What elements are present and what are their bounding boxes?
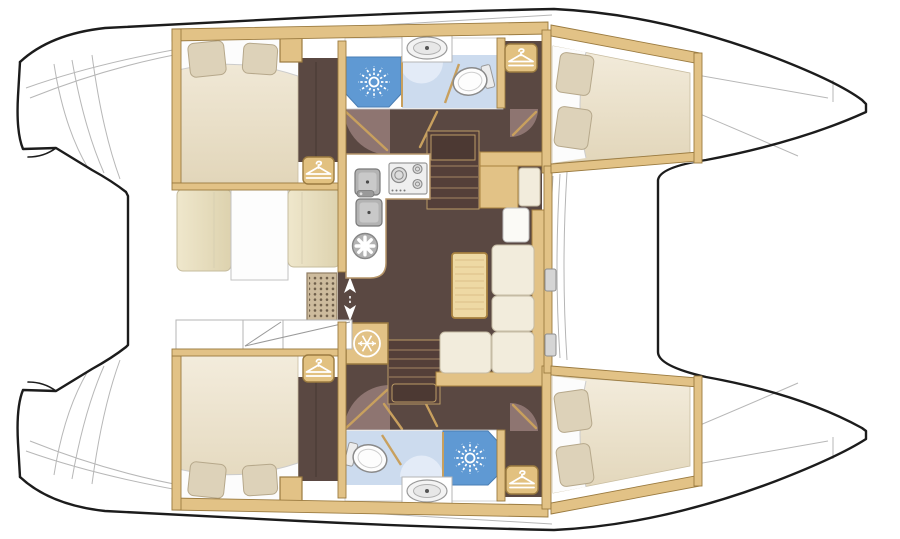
aft-cabin-bottom [178, 356, 302, 505]
fan-icon [353, 234, 378, 259]
sofa-cushion [492, 245, 534, 295]
aft-cabin-bottom-floor [296, 377, 340, 481]
bathroom-top [345, 34, 503, 109]
floor-grating [307, 273, 337, 322]
wall-mid-upper [338, 41, 346, 272]
aft-cabin-top [178, 34, 302, 183]
aft-cabin-top-floor [296, 58, 340, 162]
washbasin-icon [402, 477, 452, 505]
wall-left-lower [172, 356, 181, 510]
sink-icon [356, 199, 382, 226]
cockpit-bench [177, 189, 231, 271]
saloon-table [452, 253, 487, 318]
wall-right-lower [542, 366, 551, 509]
bathroom-bottom [343, 430, 503, 505]
stove-icon [389, 163, 427, 194]
wall-right-upper [542, 30, 551, 173]
pillow [242, 43, 278, 75]
hatch [545, 269, 556, 291]
pillow [553, 389, 592, 433]
sofa-cushion [492, 296, 534, 331]
wall-mid-lower [338, 322, 346, 498]
wardrobe-box [505, 44, 537, 72]
wardrobe-box [303, 157, 334, 184]
cockpit-bench [288, 189, 340, 267]
sofa-cushion [440, 332, 491, 373]
pillow [187, 40, 226, 78]
cockpit-table [231, 187, 288, 280]
pillow [242, 464, 278, 496]
pillow [555, 52, 594, 96]
stern-lockers [176, 320, 352, 349]
faucet-icon [357, 191, 374, 198]
sofa-cushion [492, 332, 534, 373]
wardrobe-box [506, 466, 538, 494]
companionway-stairs-top [427, 131, 479, 209]
shower-top [346, 57, 401, 107]
wall-left-upper [172, 29, 181, 183]
nav-seat [503, 208, 529, 242]
sliding-door-opening [338, 272, 346, 322]
pillow [187, 461, 226, 499]
washbasin-icon [402, 34, 452, 62]
wall-bath-top [497, 38, 505, 108]
pillow [553, 106, 592, 150]
wall-bath-bottom [497, 430, 505, 501]
hatch [545, 334, 556, 356]
companionway-stairs-bottom [388, 340, 440, 404]
wall-fwd-bulkhead-bottom [694, 376, 702, 486]
pillow [555, 443, 594, 487]
wardrobe-box [303, 355, 334, 382]
boat-floor-plan [0, 0, 900, 539]
wall-fwd-bulkhead-top [694, 53, 702, 163]
